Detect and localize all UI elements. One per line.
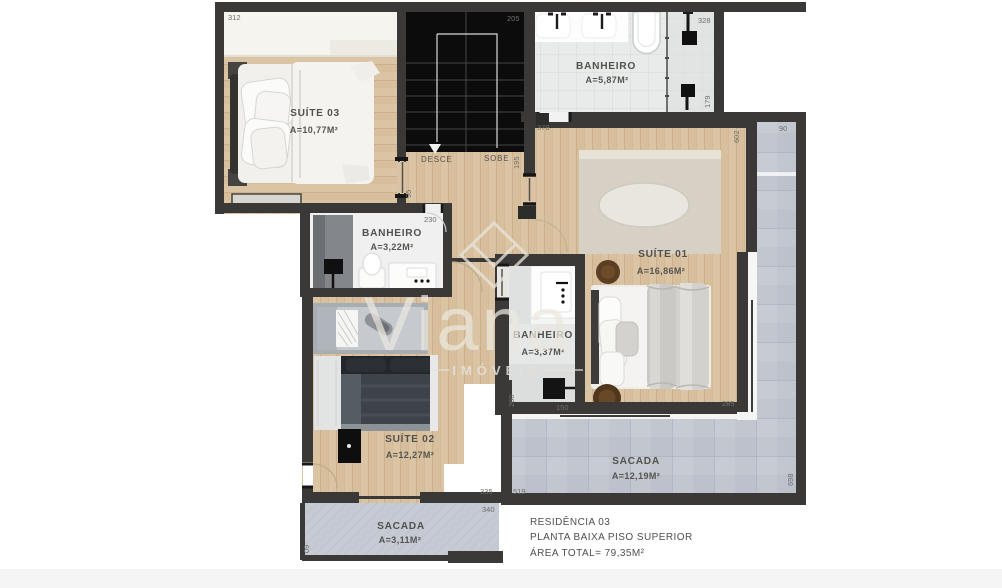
svg-text:RESIDÊNCIA 03: RESIDÊNCIA 03	[530, 515, 610, 528]
svg-text:A=10,77M²: A=10,77M²	[290, 125, 338, 135]
svg-text:95: 95	[404, 190, 413, 198]
svg-text:DESCE: DESCE	[421, 155, 453, 164]
svg-text:378: 378	[537, 123, 550, 132]
svg-text:340: 340	[482, 505, 495, 514]
svg-text:519: 519	[513, 487, 526, 496]
svg-text:195: 195	[512, 156, 521, 169]
svg-text:A=5,87M²: A=5,87M²	[586, 75, 629, 85]
svg-text:140: 140	[313, 271, 322, 284]
svg-text:BANHEIRO: BANHEIRO	[576, 61, 636, 72]
svg-text:205: 205	[507, 14, 520, 23]
svg-text:Viana: Viana	[364, 282, 572, 367]
svg-text:SUÍTE 03: SUÍTE 03	[290, 106, 340, 119]
svg-text:285: 285	[722, 399, 735, 408]
svg-text:230: 230	[424, 215, 437, 224]
svg-text:SUÍTE 02: SUÍTE 02	[385, 432, 435, 445]
svg-text:A=12,19M²: A=12,19M²	[612, 471, 660, 481]
svg-text:602: 602	[732, 130, 741, 143]
svg-text:IMÓVEIS: IMÓVEIS	[452, 363, 541, 378]
svg-text:179: 179	[703, 95, 712, 108]
svg-text:09: 09	[302, 545, 311, 553]
svg-text:PLANTA BAIXA PISO SUPERIOR: PLANTA BAIXA PISO SUPERIOR	[530, 532, 693, 543]
svg-text:90: 90	[779, 124, 787, 133]
svg-text:SACADA: SACADA	[377, 521, 425, 532]
svg-text:A=16,86M²: A=16,86M²	[637, 266, 685, 276]
svg-text:SACADA: SACADA	[612, 456, 660, 467]
svg-text:150: 150	[556, 403, 569, 412]
svg-text:312: 312	[228, 13, 241, 22]
svg-text:SOBE: SOBE	[484, 154, 509, 163]
svg-text:328: 328	[698, 16, 711, 25]
svg-text:ÁREA TOTAL= 79,35M²: ÁREA TOTAL= 79,35M²	[530, 546, 645, 559]
svg-text:A=3,22M²: A=3,22M²	[371, 242, 414, 252]
svg-text:A=12,27M²: A=12,27M²	[386, 450, 434, 460]
svg-text:A=3,11M²: A=3,11M²	[379, 535, 421, 545]
svg-text:698: 698	[786, 473, 795, 486]
svg-text:SUÍTE 01: SUÍTE 01	[638, 247, 688, 260]
svg-text:BANHEIRO: BANHEIRO	[362, 228, 422, 239]
svg-text:260: 260	[507, 394, 516, 407]
svg-text:335: 335	[480, 487, 493, 496]
